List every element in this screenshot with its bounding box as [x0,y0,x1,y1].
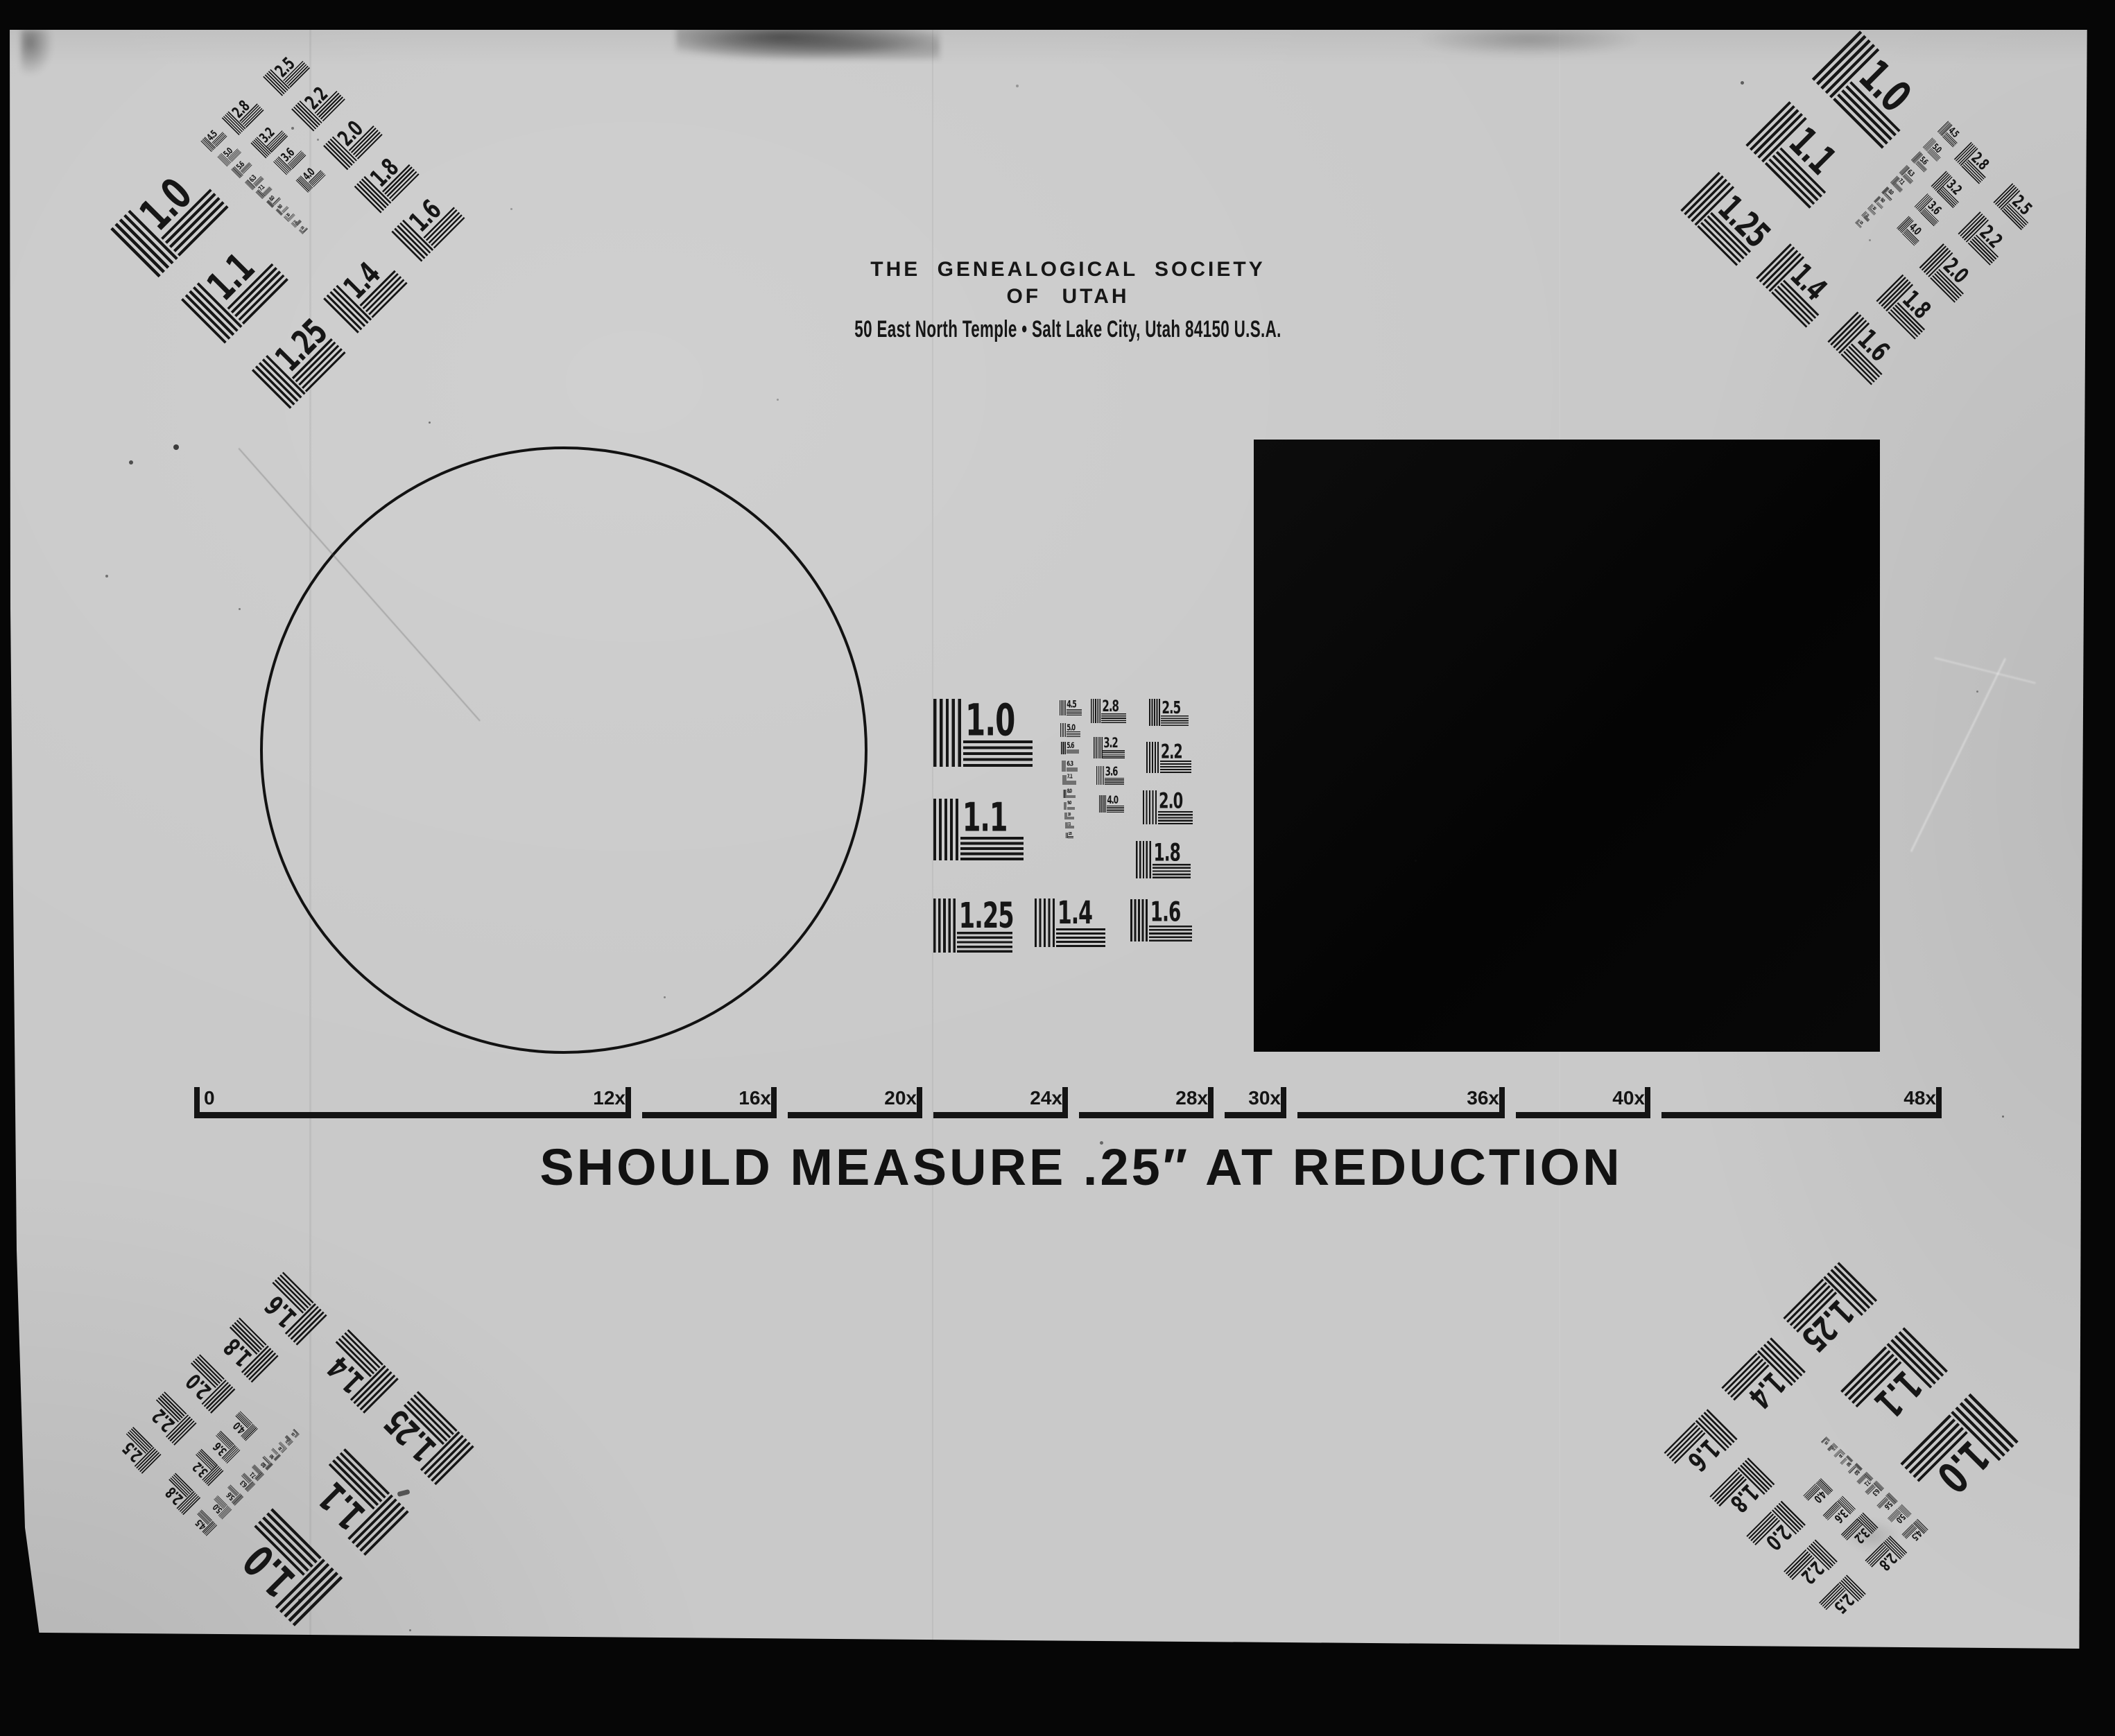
scale-segment [1516,1112,1650,1118]
film-edge-bottom [0,1632,2115,1736]
film-speck [1415,860,1417,862]
scale-tick-label: 16x [667,1088,771,1108]
scale-segment [1661,1112,1942,1118]
scale-segment [194,1112,631,1118]
scale-tick-label: 12x [521,1088,625,1108]
scale-tick-label: 30x [1177,1088,1281,1108]
film-speck [664,996,666,998]
scale-segment [933,1112,1068,1118]
film-speck [1741,81,1744,85]
scale-tick [1281,1087,1286,1118]
film-speck [1976,691,1978,693]
scale-segment [1225,1112,1286,1118]
scale-tick [1062,1087,1068,1118]
scale-tick-label: 48x [1832,1088,1936,1108]
film-edge-top [0,0,2115,30]
scale-segment [1297,1112,1505,1118]
scale-segment [642,1112,777,1118]
film-speck [173,444,179,450]
scale-tick-label: 20x [813,1088,917,1108]
reduction-scale: 012x16x20x24x28x30x36x40x48x [0,0,2115,1736]
film-speck [298,1599,301,1602]
scale-tick-label: 24x [958,1088,1062,1108]
measurement-caption: SHOULD MEASURE .25″ AT REDUCTION [539,1138,1622,1197]
film-speck [1016,85,1019,87]
film-speck [777,399,779,401]
film-speck [317,139,319,141]
scale-tick-label: 36x [1395,1088,1499,1108]
film-speck [105,575,108,578]
film-speck [1869,239,1871,241]
film-speck [510,208,512,210]
scale-tick [1499,1087,1505,1118]
film-speck [429,422,431,424]
microfilm-test-target-sheet: THE GENEALOGICAL SOCIETY OF UTAH 50 East… [0,0,2115,1736]
film-speck [291,127,294,130]
scale-tick-label: 40x [1541,1088,1645,1108]
scale-tick [1936,1087,1942,1118]
scale-tick-label: 0 [204,1088,287,1108]
scale-segment [1079,1112,1214,1118]
film-speck [409,1629,411,1631]
film-speck [239,608,241,610]
scale-tick [625,1087,631,1118]
scale-segment [788,1112,922,1118]
film-speck [129,460,133,465]
scale-tick [771,1087,777,1118]
film-speck [628,1163,630,1165]
scale-tick [1645,1087,1650,1118]
film-speck [2002,1116,2004,1118]
scale-tick [917,1087,922,1118]
film-speck [1100,1141,1103,1145]
